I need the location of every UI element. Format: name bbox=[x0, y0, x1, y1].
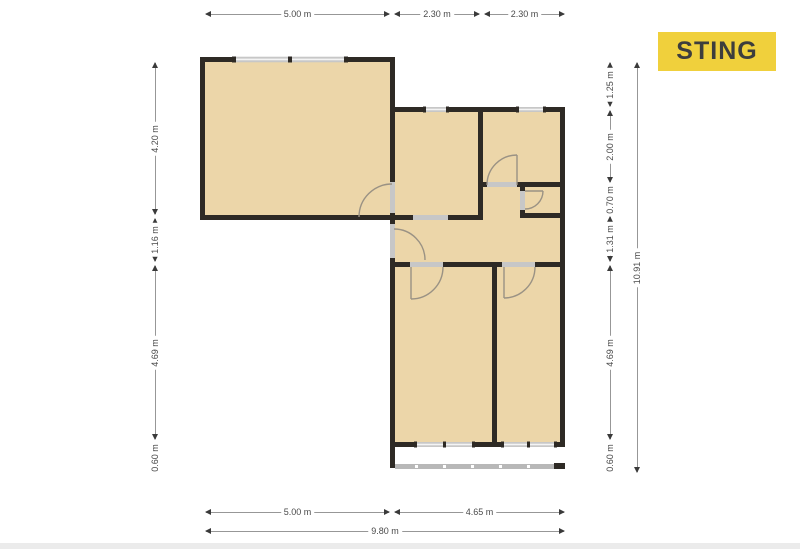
room-floors bbox=[200, 57, 565, 447]
dimension-label: 2.30 m bbox=[420, 9, 454, 19]
dimension: 4.20 m bbox=[147, 62, 163, 215]
window-bottom-left-room bbox=[414, 442, 475, 448]
page-edge bbox=[0, 543, 800, 549]
wall-outer-right bbox=[560, 107, 565, 447]
dimension: 4.69 m bbox=[602, 265, 618, 440]
dimension-label: 10.91 m bbox=[632, 248, 642, 287]
wall-divider-upper-rooms bbox=[478, 110, 483, 220]
balcony bbox=[390, 447, 565, 469]
opening-upper-right-room bbox=[487, 182, 517, 187]
dimension-label: 1.25 m bbox=[605, 68, 615, 102]
railing-post bbox=[415, 465, 418, 468]
wall-living-bottom bbox=[200, 215, 392, 220]
sting-logo-text: STING bbox=[676, 37, 757, 66]
balcony-railing bbox=[395, 464, 556, 469]
window-living-top bbox=[232, 57, 348, 63]
dimension: 1.16 m bbox=[147, 218, 163, 262]
dimension-label: 0.70 m bbox=[605, 183, 615, 217]
opening-bottom-left-room bbox=[410, 262, 443, 267]
dimension-label: 1.31 m bbox=[605, 222, 615, 256]
dimension-label: 5.00 m bbox=[281, 9, 315, 19]
sting-logo: STING bbox=[658, 32, 776, 71]
dimension: 1.25 m bbox=[602, 62, 618, 107]
right-wing-floor bbox=[390, 107, 565, 447]
dimension-label: 2.30 m bbox=[508, 9, 542, 19]
dimension: 5.00 m bbox=[205, 504, 390, 520]
dimension: 0.70 m bbox=[602, 186, 618, 213]
dimension: 2.30 m bbox=[394, 6, 480, 22]
balcony-right-wall bbox=[554, 463, 565, 469]
dimension-label: 2.00 m bbox=[605, 130, 615, 164]
window-bottom-right-room bbox=[501, 442, 557, 448]
wall-divider-bottom-rooms bbox=[492, 262, 497, 447]
dimension: 0.60 m bbox=[147, 443, 163, 473]
dimension-label: 1.16 m bbox=[150, 223, 160, 257]
dimension-label: 9.80 m bbox=[368, 526, 402, 536]
dimension-label: 0.60 m bbox=[605, 441, 615, 475]
dimension: 9.80 m bbox=[205, 523, 565, 539]
floor-plan bbox=[0, 0, 800, 549]
window-middle-room-top bbox=[423, 107, 449, 113]
dimension: 4.65 m bbox=[394, 504, 565, 520]
dimension: 10.91 m bbox=[629, 62, 645, 473]
dimension: 4.69 m bbox=[147, 265, 163, 440]
dimension-label: 4.65 m bbox=[463, 507, 497, 517]
room-living-floor bbox=[200, 57, 395, 220]
wall-wc-bottom bbox=[520, 213, 565, 218]
opening-bottom-right-room bbox=[502, 262, 535, 267]
railing-post bbox=[499, 465, 502, 468]
dimension: 1.31 m bbox=[602, 216, 618, 262]
railing-post bbox=[471, 465, 474, 468]
dimension-label: 4.69 m bbox=[605, 336, 615, 370]
dimension: 2.30 m bbox=[484, 6, 565, 22]
dimension: 0.60 m bbox=[602, 443, 618, 473]
opening-wc bbox=[520, 191, 525, 210]
dimension-label: 4.69 m bbox=[150, 336, 160, 370]
dimension-label: 4.20 m bbox=[150, 122, 160, 156]
balcony-left-wall bbox=[390, 447, 395, 468]
dimension: 2.00 m bbox=[602, 110, 618, 183]
railing-post bbox=[443, 465, 446, 468]
opening-middle-room bbox=[413, 215, 448, 220]
railing-post bbox=[527, 465, 530, 468]
dimension-label: 5.00 m bbox=[281, 507, 315, 517]
wall-living-left bbox=[200, 57, 205, 220]
dimension-label: 0.60 m bbox=[150, 441, 160, 475]
dimension: 5.00 m bbox=[205, 6, 390, 22]
opening-living-door bbox=[390, 182, 395, 213]
window-upper-right-room-top bbox=[516, 107, 546, 113]
